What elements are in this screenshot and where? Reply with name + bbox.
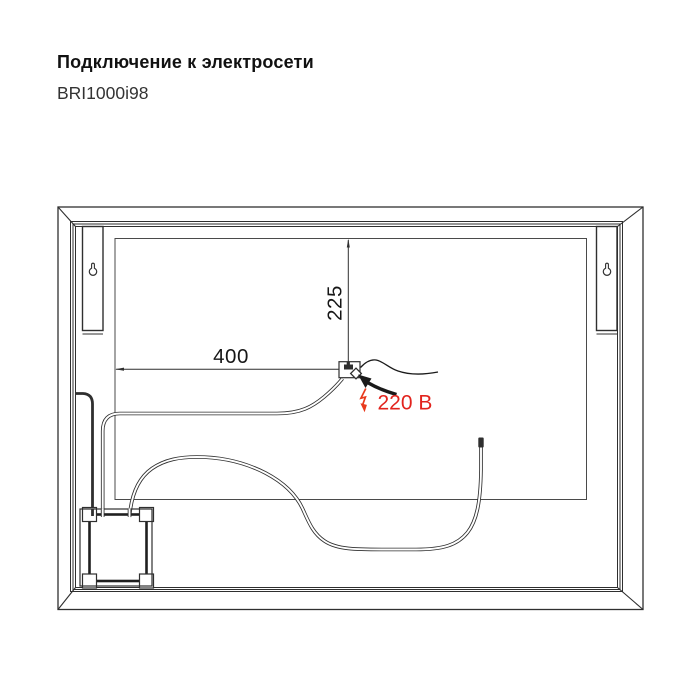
terminal-contact [344, 365, 353, 370]
dimension-label-225: 225 [324, 285, 347, 321]
miter-top-right [618, 207, 644, 227]
terminal-contact-pin [347, 362, 350, 365]
arrow-up-icon [347, 239, 350, 248]
power-terminal-box [339, 362, 361, 379]
pointer-arrow-icon [358, 360, 438, 395]
mounting-bracket-left [83, 227, 104, 335]
led-cable-core [130, 447, 482, 550]
miter-top-left [58, 207, 76, 227]
arrow-left-icon [115, 368, 124, 371]
wiring-diagram: 225 400 [0, 0, 700, 700]
frame-profile-line-1 [71, 222, 623, 592]
driver-box [80, 508, 154, 589]
lightning-icon [360, 389, 367, 413]
dimension-horizontal-400: 400 [115, 345, 339, 371]
voltage-mark: 220 В [360, 389, 432, 415]
dimension-label-400: 400 [213, 345, 249, 368]
driver-corner-tab [83, 508, 97, 522]
dimension-vertical-225: 225 [324, 239, 350, 362]
miter-bottom-right [618, 588, 644, 610]
mains-cable [76, 394, 93, 518]
driver-corner-tab [140, 508, 154, 522]
terminal-cable-outline [103, 379, 343, 518]
frame-profile-line-3 [76, 227, 618, 588]
frame-profile-line-2 [73, 224, 620, 590]
led-cable-outline [130, 447, 482, 550]
voltage-label: 220 В [378, 392, 433, 415]
terminal-cable-core [103, 379, 343, 518]
mounting-bracket-right [597, 227, 618, 335]
led-cable-connector-tip [478, 438, 483, 448]
miter-bottom-left [58, 588, 76, 610]
driver-body [90, 515, 147, 582]
